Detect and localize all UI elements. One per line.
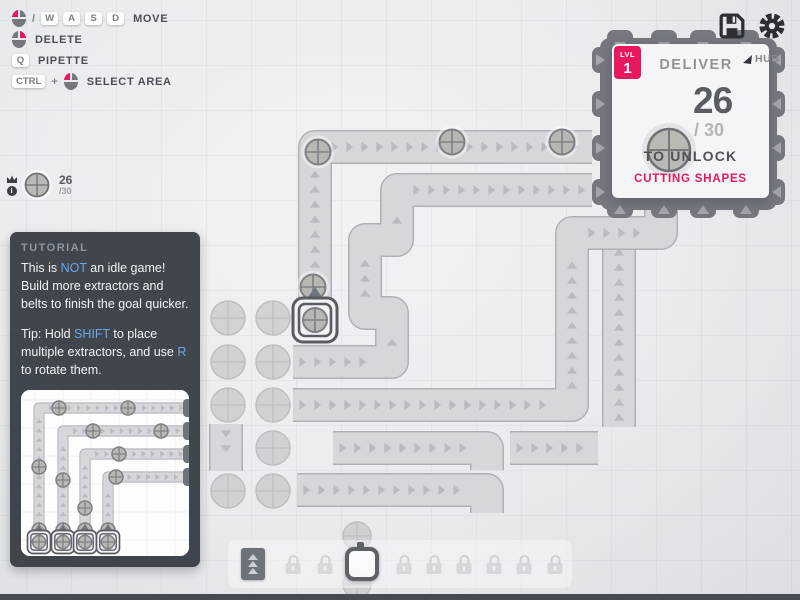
hint-label: DELETE — [35, 34, 83, 46]
info-icon: i — [7, 186, 17, 196]
tutorial-paragraph: Tip: Hold SHIFT to place multiple extrac… — [21, 326, 189, 379]
save-icon[interactable] — [719, 13, 745, 39]
level-badge: LVL 1 — [614, 46, 641, 79]
hub-goal-panel: LVL 1 DELIVER 26 / 30 TO UNLOCK CUTTING … — [612, 44, 769, 198]
circle-shape-item — [32, 535, 45, 548]
pinned-total: /30 — [59, 187, 72, 196]
toolbar-slot-locked[interactable] — [457, 540, 472, 588]
circle-shape-item — [101, 535, 114, 548]
keyboard-key: Q — [12, 54, 29, 68]
circle-shape-item — [78, 535, 91, 548]
keyboard-key: S — [85, 12, 102, 26]
map-edge-bar — [0, 594, 800, 600]
tutorial-panel: TUTORIAL This is NOT an idle game! Build… — [10, 232, 200, 567]
hint-row: QPIPETTE — [12, 52, 172, 69]
circle-shape-item — [86, 424, 100, 438]
circle-shape-item — [32, 460, 46, 474]
mouse-left-button-icon — [64, 73, 78, 90]
belt-piece[interactable] — [510, 443, 598, 453]
delivered-count: 26 — [693, 80, 732, 122]
belt-down-piece[interactable] — [221, 424, 231, 471]
toolbar-slot-belt[interactable] — [241, 540, 265, 588]
lock-icon — [397, 555, 412, 574]
hint-row: DELETE — [12, 31, 172, 48]
reward-text: CUTTING SHAPES — [612, 173, 769, 185]
lock-icon — [548, 555, 563, 574]
hint-row: CTRL+SELECT AREA — [12, 73, 172, 90]
lock-icon — [457, 555, 472, 574]
resource-deposit[interactable] — [211, 388, 245, 422]
settings-gear-icon[interactable] — [758, 12, 786, 40]
hint-separator: + — [50, 76, 58, 88]
toolbar-slot-locked[interactable] — [517, 540, 532, 588]
lock-icon — [517, 555, 532, 574]
circle-shape-item — [303, 308, 327, 332]
circle-shape-item — [56, 473, 70, 487]
circle-shape-item — [109, 470, 123, 484]
goal-crown-icon — [6, 175, 18, 184]
resource-deposit[interactable] — [256, 474, 290, 508]
belt-row-5[interactable] — [297, 485, 487, 513]
toolbar-slot-locked[interactable] — [548, 540, 563, 588]
circle-shape-item — [56, 535, 69, 548]
keyboard-key: W — [41, 12, 58, 26]
hub-marker-label: HUB — [755, 53, 779, 65]
pinned-goal[interactable]: i 26 /30 — [5, 168, 72, 202]
resource-deposit[interactable] — [211, 474, 245, 508]
building-toolbar[interactable] — [228, 540, 572, 588]
deliver-title: DELIVER — [646, 57, 746, 73]
circle-shape-item — [154, 424, 168, 438]
circle-shape-item — [121, 401, 135, 415]
tutorial-illustration — [21, 390, 189, 556]
tutorial-paragraph: This is NOT an idle game! Build more ext… — [21, 260, 189, 313]
mouse-left-button-icon — [12, 10, 26, 27]
tutorial-hub-stub — [183, 422, 189, 440]
toolbar-slot-locked[interactable] — [286, 540, 301, 588]
toolbar-slot-locked[interactable] — [318, 540, 333, 588]
hub-marker[interactable]: HUB — [742, 53, 779, 65]
hint-separator: / — [31, 13, 36, 25]
tutorial-hub-stub — [183, 445, 189, 463]
hub-marker-icon — [742, 54, 753, 65]
resource-deposit[interactable] — [256, 431, 290, 465]
toolbar-slot-locked[interactable] — [397, 540, 412, 588]
keyboard-key: A — [63, 12, 80, 26]
level-number: 1 — [614, 61, 641, 76]
game-viewport[interactable]: LVL 1 DELIVER 26 / 30 TO UNLOCK CUTTING … — [0, 0, 800, 600]
belt-row-4[interactable] — [333, 443, 487, 470]
circle-shape-item — [52, 401, 66, 415]
lock-icon — [427, 555, 442, 574]
pinned-shape-icon — [20, 168, 54, 202]
resource-deposit[interactable] — [256, 388, 290, 422]
tutorial-hub-stub — [183, 399, 189, 417]
lock-icon — [286, 555, 301, 574]
toolbar-slot-locked[interactable] — [487, 540, 502, 588]
unlock-text: TO UNLOCK — [612, 148, 769, 164]
belt-icon — [241, 548, 265, 580]
resource-deposit[interactable] — [211, 345, 245, 379]
lock-icon — [318, 555, 333, 574]
hint-label: SELECT AREA — [87, 76, 172, 88]
tutorial-hub-stub — [183, 468, 189, 486]
keybinding-hints: /WASDMOVEDELETEQPIPETTECTRL+SELECT AREA — [12, 10, 172, 90]
keyboard-key: D — [107, 12, 124, 26]
hint-label: PIPETTE — [38, 55, 89, 67]
lock-icon — [487, 555, 502, 574]
hint-row: /WASDMOVE — [12, 10, 172, 27]
belt-serpentine-to-hub[interactable] — [293, 185, 592, 367]
goal-total: / 30 — [694, 120, 724, 141]
belt-inner-to-hub[interactable] — [614, 232, 624, 427]
circle-shape-item — [302, 136, 335, 169]
tutorial-title: TUTORIAL — [21, 242, 189, 254]
hint-label: MOVE — [133, 13, 168, 25]
resource-deposit[interactable] — [256, 301, 290, 335]
level-label: LVL — [614, 51, 641, 59]
keyboard-key: CTRL — [12, 75, 45, 89]
resource-deposit[interactable] — [256, 345, 290, 379]
pinned-current: 26 — [59, 174, 72, 187]
mouse-right-button-icon — [12, 31, 26, 48]
circle-shape-item — [112, 447, 126, 461]
circle-shape-item — [436, 126, 469, 159]
circle-shape-item — [546, 126, 579, 159]
circle-shape-item — [78, 501, 92, 515]
toolbar-slot-extractor-selected[interactable] — [345, 540, 379, 588]
extractor-icon — [345, 547, 379, 581]
toolbar-slot-locked[interactable] — [427, 540, 442, 588]
resource-deposit[interactable] — [211, 301, 245, 335]
